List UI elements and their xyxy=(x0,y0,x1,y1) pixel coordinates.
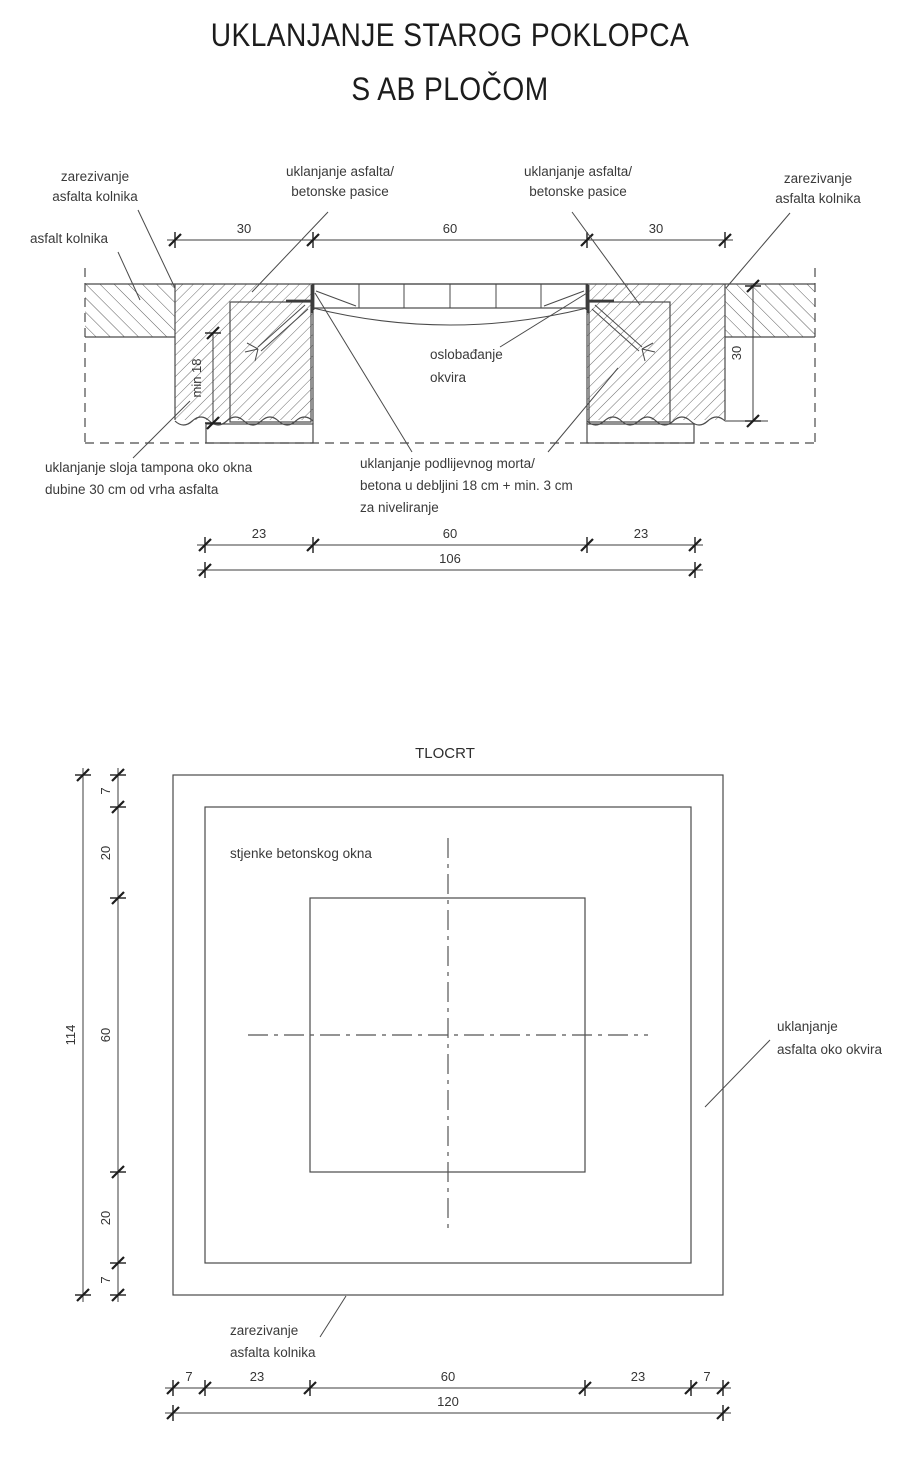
asphalt-right-hatch xyxy=(725,284,815,337)
label-pasica-right-1: uklanjanje asfalta/ xyxy=(524,164,632,179)
label-oslobadanje-2: okvira xyxy=(430,370,467,385)
drawing-svg: UKLANJANJE STAROG POKLOPCA S AB PLOČOM xyxy=(0,0,910,1467)
plan-dim-bottom: 7 23 60 23 7 120 xyxy=(165,1369,731,1421)
dim-h-5: 7 xyxy=(703,1369,710,1384)
label-mort-3: za niveliranje xyxy=(360,500,439,515)
dim-v-1: 7 xyxy=(98,787,113,794)
dim-h-2: 23 xyxy=(250,1369,264,1384)
dim-h-3: 60 xyxy=(441,1369,455,1384)
dim-top-mid: 60 xyxy=(443,221,457,236)
label-zarezivanje-right-1: zarezivanje xyxy=(784,171,852,186)
section-dim-top: 30 60 30 xyxy=(167,221,733,248)
technical-drawing-page: UKLANJANJE STAROG POKLOPCA S AB PLOČOM xyxy=(0,0,910,1467)
dim-top-left: 30 xyxy=(237,221,251,236)
label-asfalt-okvir-1: uklanjanje xyxy=(777,1019,838,1034)
dim-top-right: 30 xyxy=(649,221,663,236)
removal-zone-left xyxy=(175,284,313,420)
removal-zone-right xyxy=(587,284,725,420)
label-pasica-left-2: betonske pasice xyxy=(291,184,389,199)
plan-view: TLOCRT 114 7 20 60 20 7 xyxy=(63,745,883,1421)
dim-v-4: 20 xyxy=(98,1211,113,1225)
asphalt-left-hatch xyxy=(85,284,175,337)
dim-v-total: 114 xyxy=(63,1025,78,1046)
label-mort-1: uklanjanje podlijevnog morta/ xyxy=(360,456,535,471)
section-labels: zarezivanje asfalta kolnika asfalt kolni… xyxy=(30,164,861,515)
plan-dim-left: 114 7 20 60 20 7 xyxy=(63,768,126,1302)
dim-min18: min 18 xyxy=(189,358,204,397)
label-asfalt-kolnika: asfalt kolnika xyxy=(30,231,109,246)
plan-labels: stjenke betonskog okna uklanjanje asfalt… xyxy=(230,846,883,1360)
label-stjenke: stjenke betonskog okna xyxy=(230,846,372,861)
drawing-title: UKLANJANJE STAROG POKLOPCA S AB PLOČOM xyxy=(211,18,690,107)
dim-v-3: 60 xyxy=(98,1028,113,1042)
dim-depth-30: 30 xyxy=(729,346,744,360)
plan-leaders xyxy=(320,1040,770,1337)
label-pasica-left-1: uklanjanje asfalta/ xyxy=(286,164,394,179)
label-oslobadanje-1: oslobađanje xyxy=(430,347,503,362)
plan-title: TLOCRT xyxy=(415,745,475,762)
label-zarezivanje-left-2: asfalta kolnika xyxy=(52,189,138,204)
label-asfalt-okvir-2: asfalta oko okvira xyxy=(777,1042,883,1057)
label-pasica-right-2: betonske pasice xyxy=(529,184,627,199)
label-zarezivanje-left-1: zarezivanje xyxy=(61,169,129,184)
label-mort-2: betona u debljini 18 cm + min. 3 cm xyxy=(360,478,573,493)
label-plan-zarezivanje-1: zarezivanje xyxy=(230,1323,298,1338)
dim-total-106: 106 xyxy=(439,551,461,566)
dim-bot-right: 23 xyxy=(634,526,648,541)
label-zarezivanje-right-2: asfalta kolnika xyxy=(775,191,861,206)
dim-v-5: 7 xyxy=(98,1276,113,1283)
label-plan-zarezivanje-2: asfalta kolnika xyxy=(230,1345,316,1360)
shaft-wall-stub-right xyxy=(587,424,694,443)
dim-h-total: 120 xyxy=(437,1394,459,1409)
section-dim-bottom: 23 60 23 106 xyxy=(197,526,703,578)
dim-bot-mid: 60 xyxy=(443,526,457,541)
title-line-1: UKLANJANJE STAROG POKLOPCA xyxy=(211,18,690,53)
section-view: 30 60 30 min 18 30 23 60 2 xyxy=(30,164,861,578)
dim-h-4: 23 xyxy=(631,1369,645,1384)
slab-sag-curve xyxy=(313,308,587,325)
dim-bot-left: 23 xyxy=(252,526,266,541)
dim-h-1: 7 xyxy=(185,1369,192,1384)
label-tampon-1: uklanjanje sloja tampona oko okna xyxy=(45,460,253,475)
shaft-wall-stub-left xyxy=(206,424,313,443)
label-tampon-2: dubine 30 cm od vrha asfalta xyxy=(45,482,219,497)
title-line-2: S AB PLOČOM xyxy=(351,71,548,107)
dim-v-2: 20 xyxy=(98,846,113,860)
